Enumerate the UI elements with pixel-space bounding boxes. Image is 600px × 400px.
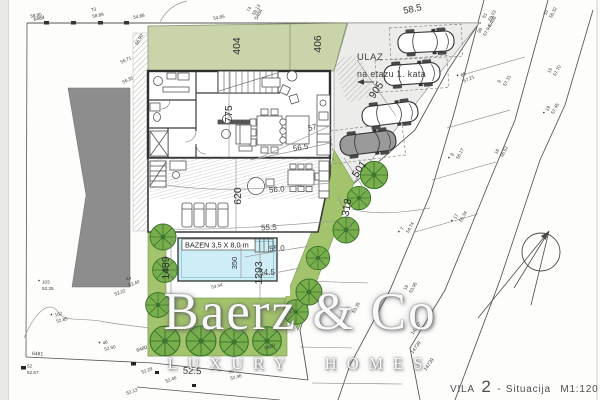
- title-dash: -: [497, 384, 501, 395]
- svg-text:54.5: 54.5: [259, 268, 275, 277]
- title-scale: M1:120: [560, 384, 598, 395]
- title-project: VILA: [450, 384, 475, 395]
- dim-strip-left: 404: [231, 37, 243, 55]
- toilet: [154, 113, 161, 122]
- dim-pool-width: 350: [230, 257, 239, 270]
- pool-label: BAZEN 3,5 X 8,0 m: [185, 240, 249, 249]
- retaining-wall-hatch: [133, 33, 148, 231]
- svg-text:55.0: 55.0: [269, 244, 286, 254]
- title-name: Situacija: [506, 384, 551, 395]
- svg-text:55.5: 55.5: [261, 223, 278, 233]
- svg-text:103: 103: [42, 280, 50, 285]
- svg-text:53.35: 53.35: [42, 286, 54, 291]
- dim-bottom-width: 52.5: [183, 366, 202, 378]
- dim-house-depth: 775: [223, 105, 235, 123]
- svg-text:56.0: 56.0: [269, 184, 286, 194]
- outdoor-round-table: [248, 178, 265, 195]
- svg-text:6481: 6481: [32, 351, 44, 358]
- outdoor-dining-table: [288, 170, 314, 185]
- kitchen-island: [286, 116, 309, 144]
- site-plan-drawing: BAZEN 3,5 X 8,0 m: [0, 0, 600, 400]
- dim-strip-right: 406: [312, 35, 324, 53]
- dim-garden-width: 1489: [160, 256, 172, 280]
- sink-round: [154, 77, 163, 86]
- entrance-label: ULAZ: [357, 52, 383, 63]
- wc-sink: [150, 103, 160, 111]
- entrance-sublabel: na etazu 1. kata: [357, 69, 426, 79]
- dining-table: [257, 116, 282, 145]
- outdoor-kitchen: [170, 161, 186, 170]
- svg-text:52: 52: [27, 364, 33, 369]
- page-left-margin: [0, 0, 8, 400]
- title-number: 2: [481, 377, 490, 396]
- svg-text:52.57: 52.57: [27, 370, 39, 375]
- site-plan: BAZEN 3,5 X 8,0 m: [0, 0, 600, 400]
- title-block: VILA 2 - Situacija M1:120: [450, 377, 598, 397]
- washer: [178, 73, 189, 80]
- sofa: [236, 125, 251, 144]
- bath-counter: [163, 87, 189, 92]
- dim-terrace-depth: 620: [232, 187, 244, 205]
- desk: [262, 78, 280, 87]
- washer: [167, 73, 176, 79]
- bar-counter: [319, 161, 329, 198]
- coffee-table: [239, 146, 252, 151]
